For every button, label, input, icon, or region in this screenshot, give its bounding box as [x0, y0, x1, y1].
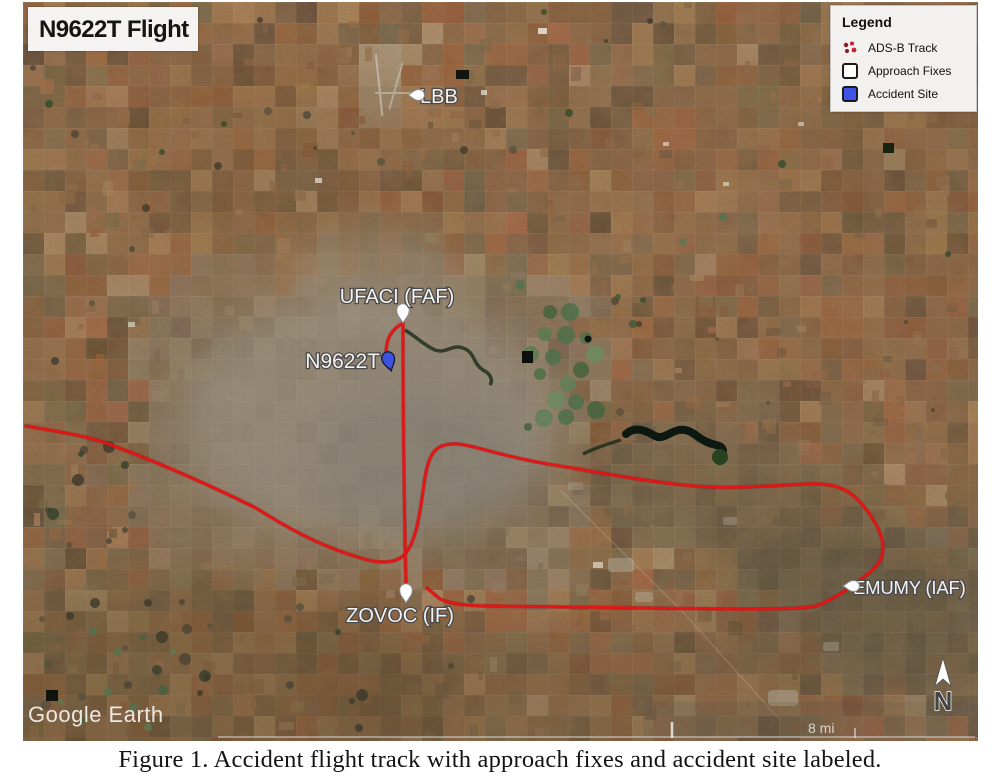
svg-text:UFACI (FAF): UFACI (FAF): [340, 286, 454, 308]
svg-text:Google Earth: Google Earth: [28, 702, 164, 727]
svg-text:8 mi: 8 mi: [808, 720, 834, 736]
svg-text:N9622T: N9622T: [305, 350, 380, 373]
svg-text:N: N: [934, 686, 953, 716]
svg-text:ZOVOC (IF): ZOVOC (IF): [346, 605, 454, 627]
svg-text:LBB: LBB: [420, 86, 458, 108]
svg-text:EMUMY (IAF): EMUMY (IAF): [853, 577, 966, 598]
